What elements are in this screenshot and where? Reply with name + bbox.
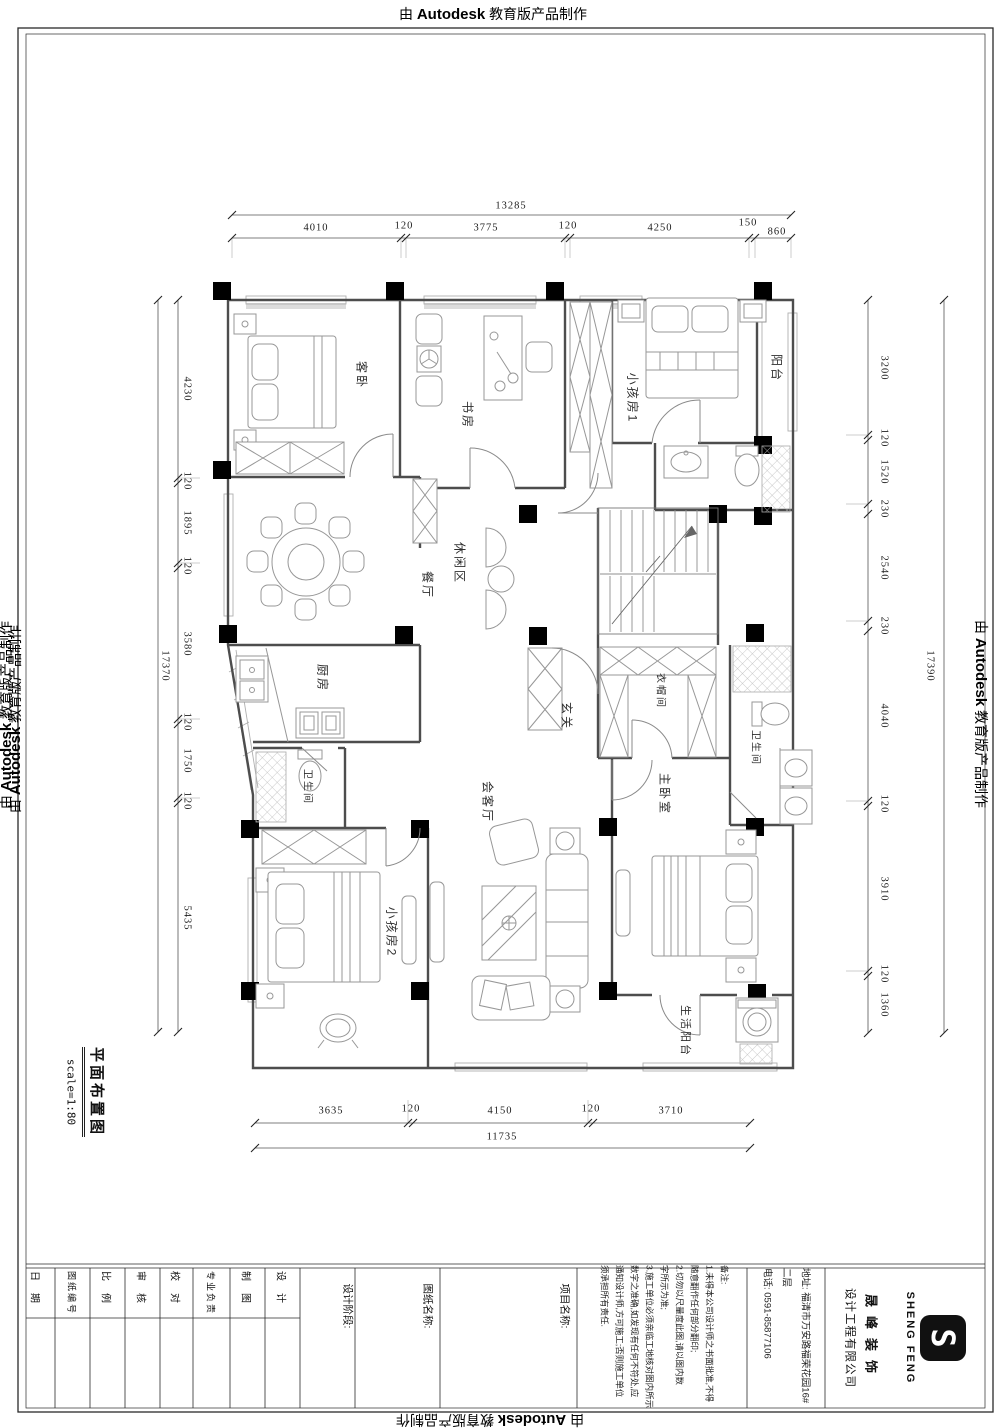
dim-left-seg-6: 1750 bbox=[182, 749, 193, 774]
tb-note-line: 须承担所有责任. bbox=[597, 1265, 612, 1411]
room-label-guest-bedroom: 客卧 bbox=[354, 361, 371, 389]
tb-note-line: 备注: bbox=[717, 1265, 732, 1411]
living-room-sofa bbox=[402, 817, 630, 1020]
tb-field-design: 设计 bbox=[275, 1271, 290, 1315]
dim-top-total: 13285 bbox=[495, 201, 526, 212]
dim-top-seg-4: 4250 bbox=[648, 223, 673, 234]
plan-scale: scale=1:80 bbox=[65, 1059, 78, 1125]
tb-field-drawing-no: 图纸编号 bbox=[66, 1271, 79, 1315]
dim-right-seg-2: 1520 bbox=[879, 460, 890, 485]
dim-right-seg-6: 4040 bbox=[879, 704, 890, 729]
tb-field-review: 审核 bbox=[135, 1271, 150, 1315]
room-label-leisure: 休闲区 bbox=[452, 542, 469, 584]
leisure-chairs bbox=[486, 528, 514, 629]
dim-bottom-total: 11735 bbox=[487, 1132, 518, 1143]
watermark-prefix: 由 bbox=[399, 6, 413, 22]
tb-note-line: 数字之准确,如发现有任何不符处,应 bbox=[627, 1265, 642, 1411]
tb-note-line: 2.切勿以尺量度此图,请以图内数 bbox=[672, 1265, 687, 1411]
dim-top-seg-1: 120 bbox=[395, 221, 414, 232]
dining-table bbox=[247, 503, 364, 620]
dim-top-seg-0: 4010 bbox=[304, 223, 329, 234]
autodesk-watermark-left-2: 由 Autodesk 教育版产品制作 bbox=[5, 625, 25, 813]
tb-field-draft: 制图 bbox=[240, 1271, 255, 1315]
room-label-kid1: 小孩房1 bbox=[625, 373, 642, 424]
dim-top-seg-6: 860 bbox=[768, 227, 787, 238]
room-label-study: 书房 bbox=[460, 401, 477, 429]
dim-right-seg-3: 230 bbox=[879, 500, 890, 519]
room-label-foyer: 玄关 bbox=[559, 702, 576, 730]
kitchen-fixtures bbox=[236, 648, 344, 742]
dim-right-total: 17390 bbox=[925, 650, 936, 681]
dim-top-seg-3: 120 bbox=[559, 221, 578, 232]
dim-top-seg-2: 3775 bbox=[474, 223, 499, 234]
tb-drawing-name: 图纸名称: bbox=[421, 1284, 436, 1329]
tb-note-line: 3.施工单位必须亲临工地核对图内所示 bbox=[642, 1265, 657, 1411]
company-logo-text: SHENG FENG bbox=[904, 1278, 916, 1398]
tb-field-ratio: 比例 bbox=[100, 1271, 115, 1315]
dim-bottom-seg-0: 3635 bbox=[319, 1106, 344, 1117]
room-label-kid2: 小孩房2 bbox=[384, 907, 401, 958]
plan-title: 平面布置图 bbox=[82, 1047, 108, 1137]
tb-notes: 备注: 1.未得本公司设计师之书面批准,不得 随意翻作任何部分翻印; 2.切勿以… bbox=[597, 1265, 732, 1411]
sheet-frame bbox=[18, 28, 993, 1412]
dim-right-seg-8: 3910 bbox=[879, 877, 890, 902]
tb-address: 地址: 福清市万安路福荣花园16#二层 bbox=[777, 1268, 815, 1408]
tb-contact: 地址: 福清市万安路福荣花园16#二层 电话: 0591-85877106 bbox=[758, 1268, 815, 1408]
tb-field-proofread: 校对 bbox=[169, 1271, 184, 1315]
room-label-cloakroom: 衣帽间 bbox=[655, 673, 670, 709]
washing-machine bbox=[736, 998, 778, 1042]
study-desk bbox=[416, 302, 612, 488]
tb-note-line: 1.未得本公司设计师之书面批准,不得 bbox=[702, 1265, 717, 1411]
dim-right-seg-7: 120 bbox=[879, 795, 890, 814]
foyer-cabinet bbox=[528, 648, 562, 730]
dim-left-seg-1: 120 bbox=[182, 472, 193, 491]
dim-left-seg-4: 3580 bbox=[182, 632, 193, 657]
upper-bathroom-fixtures bbox=[664, 446, 759, 486]
tb-design-stage: 设计阶段: bbox=[341, 1284, 356, 1329]
watermark-brand: Autodesk bbox=[417, 6, 485, 23]
watermark-suffix: 教育版产品制作 bbox=[489, 6, 587, 22]
drawing-sheet: 由 Autodesk 教育版产品制作 由 Autodesk 教育版产品制作 由 … bbox=[0, 0, 1000, 1428]
kid2-bed bbox=[256, 830, 380, 1048]
staircase bbox=[598, 508, 718, 634]
company-subtitle: 设计工程有限公司 bbox=[843, 1260, 859, 1416]
autodesk-watermark-top: 由 Autodesk 教育版产品制作 bbox=[399, 4, 587, 24]
tb-project-name: 项目名称: bbox=[558, 1284, 573, 1329]
tb-phone: 电话: 0591-85877106 bbox=[758, 1268, 777, 1408]
room-label-master-bedroom: 主卧室 bbox=[657, 773, 674, 815]
room-label-balcony: 阳台 bbox=[769, 354, 786, 382]
guest-bed bbox=[234, 314, 344, 474]
dim-bottom-seg-2: 4150 bbox=[488, 1106, 513, 1117]
dim-left-total: 17370 bbox=[160, 650, 171, 681]
dim-left-seg-8: 5435 bbox=[182, 906, 193, 931]
room-label-dining: 餐厅 bbox=[420, 571, 437, 599]
dim-right-seg-4: 2540 bbox=[879, 556, 890, 581]
company-name: 晟峰装饰 bbox=[863, 1260, 882, 1416]
dim-left-seg-0: 4230 bbox=[182, 377, 193, 402]
room-label-living: 会客厅 bbox=[480, 781, 497, 823]
tb-company: 晟峰装饰 设计工程有限公司 bbox=[843, 1260, 882, 1416]
dim-right-seg-1: 120 bbox=[879, 429, 890, 448]
dim-right-seg-0: 3200 bbox=[879, 356, 890, 381]
dim-bottom-seg-3: 120 bbox=[582, 1104, 601, 1115]
dim-right-seg-9: 120 bbox=[879, 965, 890, 984]
company-logo: S SHENG FENG bbox=[904, 1278, 966, 1398]
tb-note-line: 字所示为准; bbox=[657, 1265, 672, 1411]
dim-left-seg-3: 120 bbox=[182, 557, 193, 576]
dining-cabinet bbox=[413, 479, 437, 543]
room-label-small-bathroom: 卫生间 bbox=[302, 769, 317, 805]
tb-field-discipline: 专业负责 bbox=[205, 1271, 218, 1315]
dim-right-seg-10: 1360 bbox=[879, 993, 890, 1018]
dim-top-seg-5: 150 bbox=[739, 218, 758, 229]
room-label-master-bathroom: 卫生间 bbox=[750, 730, 765, 766]
dim-left-seg-5: 120 bbox=[182, 713, 193, 732]
company-logo-icon: S bbox=[920, 1315, 966, 1361]
dim-left-seg-7: 120 bbox=[182, 792, 193, 811]
autodesk-watermark-bottom: 由 Autodesk 教育版产品制作 bbox=[396, 1410, 584, 1428]
dim-left-seg-2: 1895 bbox=[182, 511, 193, 536]
room-label-service-balcony: 生活阳台 bbox=[678, 1005, 694, 1057]
dim-bottom-seg-1: 120 bbox=[402, 1104, 421, 1115]
dim-bottom-seg-4: 3710 bbox=[659, 1106, 684, 1117]
autodesk-watermark-right: 由 Autodesk 教育版产品制作 bbox=[971, 620, 991, 808]
tb-field-date: 日期 bbox=[29, 1271, 44, 1315]
master-bed bbox=[652, 830, 758, 982]
dim-right-seg-5: 230 bbox=[879, 617, 890, 636]
tb-note-line: 通知设计师,方可施工;否则施工单位 bbox=[612, 1265, 627, 1411]
tb-note-line: 随意翻作任何部分翻印; bbox=[687, 1265, 702, 1411]
room-label-kitchen: 厨房 bbox=[315, 664, 332, 692]
floor-plan-svg bbox=[0, 0, 1000, 1428]
